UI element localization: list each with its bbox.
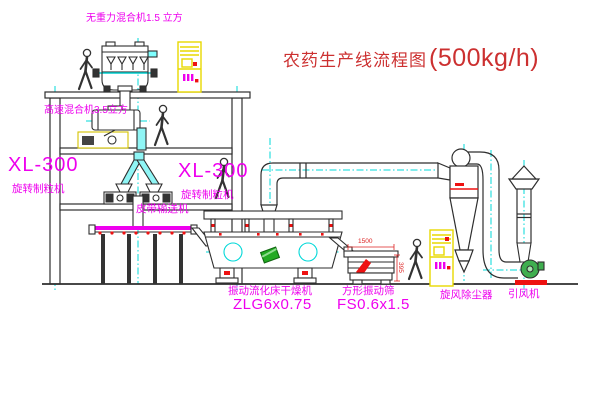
label-fan: 引风机 bbox=[508, 289, 540, 300]
stack-rain-cap bbox=[512, 166, 536, 179]
title-capacity: (500kg/h) bbox=[429, 44, 539, 73]
fan-outlet-transition bbox=[517, 243, 531, 262]
worker-figure-floor2 bbox=[155, 105, 168, 145]
cyclone-separator bbox=[450, 149, 478, 272]
belt-conveyor bbox=[89, 225, 213, 284]
red-tag bbox=[455, 183, 464, 186]
indicator-lamp bbox=[445, 237, 449, 241]
label-granulator-right-model: XL-300 bbox=[178, 161, 249, 181]
cabinet-buttons bbox=[183, 74, 193, 81]
label-cyclone: 旋风除尘器 bbox=[440, 290, 493, 301]
indicator-lamp bbox=[193, 62, 197, 66]
fan-base bbox=[515, 280, 547, 285]
label-dryer-model: ZLG6x0.75 bbox=[233, 297, 312, 312]
dimension-sieve-length: 1500 bbox=[358, 239, 372, 246]
stack-cap-brim bbox=[509, 179, 539, 189]
cabinet-buttons bbox=[435, 262, 445, 269]
cyclone-cone bbox=[450, 198, 478, 250]
process-flow-drawing: 农药生产线流程图 (500kg/h) 无重力混合机1.5 立方 高速混合机3.5… bbox=[0, 0, 600, 403]
label-granulator-right-name: 旋转制粒机 bbox=[181, 190, 234, 201]
induced-draft-fan bbox=[515, 243, 547, 285]
label-sieve-name: 方形振动筛 bbox=[342, 286, 395, 297]
control-cabinet-roof bbox=[178, 42, 201, 92]
label-granulator-left-name: 旋转制粒机 bbox=[12, 184, 65, 195]
exhaust-duct bbox=[261, 163, 450, 218]
fluid-bed-dryer bbox=[204, 211, 342, 283]
label-granulator-left-model: XL-300 bbox=[8, 155, 79, 175]
cyclone-top-dome bbox=[452, 149, 470, 167]
cyclone-cylinder bbox=[450, 166, 478, 198]
label-sieve-model: FS0.6x1.5 bbox=[337, 297, 410, 312]
sieve-deck bbox=[344, 251, 398, 257]
label-high-speed-mixer: 高速混合机3.5立方 bbox=[44, 106, 128, 116]
gravity-free-mixer bbox=[93, 42, 157, 112]
dimension-sieve-height: 395 bbox=[397, 262, 404, 273]
diagram-title: 农药生产线流程图 (500kg/h) bbox=[283, 44, 539, 73]
label-gravity-mixer: 无重力混合机1.5 立方 bbox=[86, 14, 183, 24]
dryer-top-beam bbox=[204, 211, 342, 219]
title-text: 农药生产线流程图 bbox=[283, 46, 427, 71]
y-distribution-chute bbox=[116, 152, 162, 192]
worker-figure-ground bbox=[409, 239, 422, 279]
granulator-left bbox=[104, 192, 136, 204]
cyclone-discharge bbox=[459, 261, 469, 272]
belt-strip bbox=[94, 226, 192, 230]
worker-figure-roof bbox=[79, 49, 92, 89]
control-cabinet-right bbox=[430, 230, 453, 286]
mixer-inlet-port bbox=[148, 51, 157, 57]
label-belt-conveyor: 皮带输送机 bbox=[136, 204, 189, 215]
label-dryer-name: 振动流化床干燥机 bbox=[228, 286, 312, 297]
building-roof-slab bbox=[45, 92, 250, 98]
mixer-discharge-chute bbox=[137, 128, 146, 150]
dryer-spring-mount-right bbox=[294, 268, 316, 283]
